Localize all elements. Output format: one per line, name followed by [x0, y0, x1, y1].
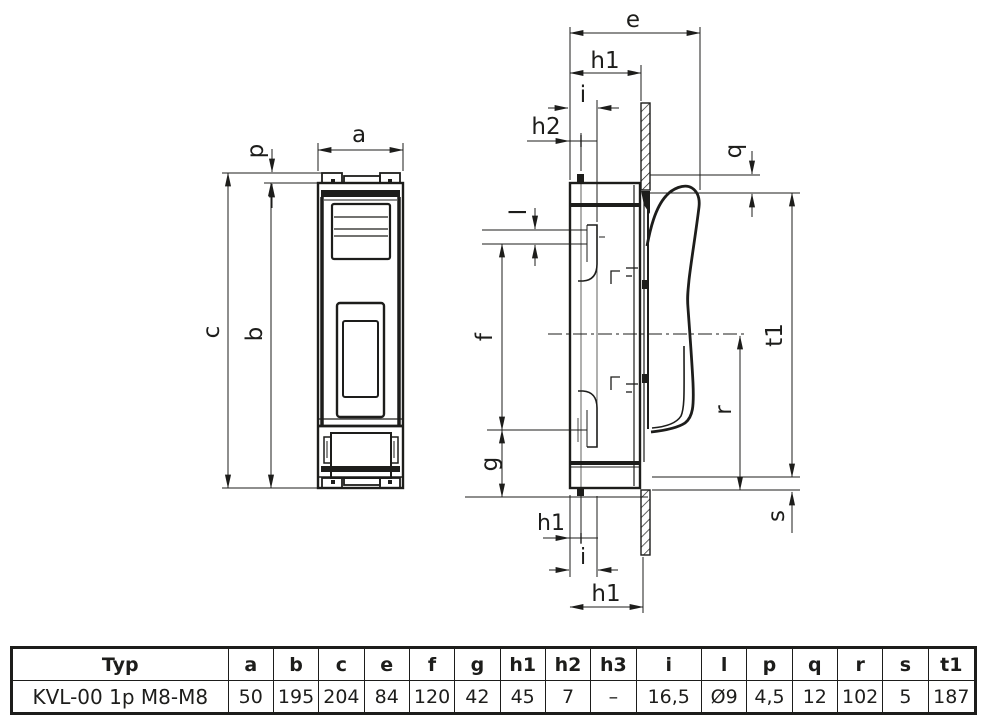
table-header-i: i	[636, 648, 701, 681]
dim-label-i-bottom: i	[580, 545, 586, 570]
table-header-q: q	[792, 648, 837, 681]
table-header-h1: h1	[500, 648, 545, 681]
side-view-device	[548, 103, 744, 555]
table-cell-h2: 7	[545, 681, 590, 714]
front-view: a p c b	[199, 122, 403, 488]
table-cell-g: 42	[455, 681, 500, 714]
dim-label-l: l	[506, 209, 532, 215]
dim-label-r: r	[711, 405, 737, 415]
table-cell-a: 50	[228, 681, 273, 714]
table-cell-l: Ø9	[701, 681, 746, 714]
dim-label-e: e	[626, 7, 640, 33]
table-header-s: s	[883, 648, 928, 681]
side-view-dimensions	[465, 27, 800, 613]
table-cell-r: 102	[837, 681, 882, 714]
dim-label-h1-bottom: h1	[591, 581, 620, 607]
table-cell-t1: 187	[928, 681, 975, 714]
front-view-device	[318, 173, 403, 488]
table-header-row: Typ a b c e f g h1 h2 h3 i l p q r s t1	[12, 648, 976, 681]
table-cell-q: 12	[792, 681, 837, 714]
table-cell-p: 4,5	[747, 681, 792, 714]
table-data-row: KVL-00 1p M8-M8 50 195 204 84 120 42 45 …	[12, 681, 976, 714]
table-cell-typ: KVL-00 1p M8-M8	[12, 681, 229, 714]
dim-label-h1-top: h1	[590, 48, 619, 74]
table-header-b: b	[273, 648, 318, 681]
dim-label-g: g	[477, 457, 503, 472]
table-cell-b: 195	[273, 681, 318, 714]
table-cell-h1: 45	[500, 681, 545, 714]
handle-outline	[647, 186, 699, 432]
table-header-h3: h3	[591, 648, 636, 681]
table-header-f: f	[409, 648, 454, 681]
dim-label-q: q	[721, 144, 747, 159]
dim-label-c: c	[199, 326, 225, 339]
table-cell-h3: –	[591, 681, 636, 714]
dimension-table: Typ a b c e f g h1 h2 h3 i l p q r s t1 …	[10, 646, 977, 715]
table-header-g: g	[455, 648, 500, 681]
dim-label-s: s	[764, 510, 790, 522]
table-header-e: e	[364, 648, 409, 681]
table-header-c: c	[319, 648, 364, 681]
dim-label-i-top: i	[580, 82, 586, 108]
table-header-p: p	[747, 648, 792, 681]
table-header-t1: t1	[928, 648, 975, 681]
table-header-typ: Typ	[12, 648, 229, 681]
mounting-plate-bottom	[641, 490, 650, 555]
dim-label-h1-small-bottom: h1	[537, 511, 565, 536]
table-cell-i: 16,5	[636, 681, 701, 714]
side-view: e h1 i h2 q l f g t1 r s h1 i h1	[465, 7, 800, 613]
table-cell-s: 5	[883, 681, 928, 714]
dim-label-t1: t1	[762, 323, 788, 347]
dim-label-h2: h2	[531, 114, 560, 140]
dim-label-p: p	[243, 144, 269, 159]
dim-label-b: b	[242, 327, 268, 342]
table-cell-e: 84	[364, 681, 409, 714]
dim-label-f: f	[472, 332, 498, 341]
table-header-r: r	[837, 648, 882, 681]
table-cell-c: 204	[319, 681, 364, 714]
mounting-plate-top	[641, 103, 650, 190]
table-header-a: a	[228, 648, 273, 681]
technical-drawing: a p c b	[0, 0, 991, 650]
table-header-l: l	[701, 648, 746, 681]
table-header-h2: h2	[545, 648, 590, 681]
table-cell-f: 120	[409, 681, 454, 714]
dim-label-a: a	[352, 122, 366, 148]
